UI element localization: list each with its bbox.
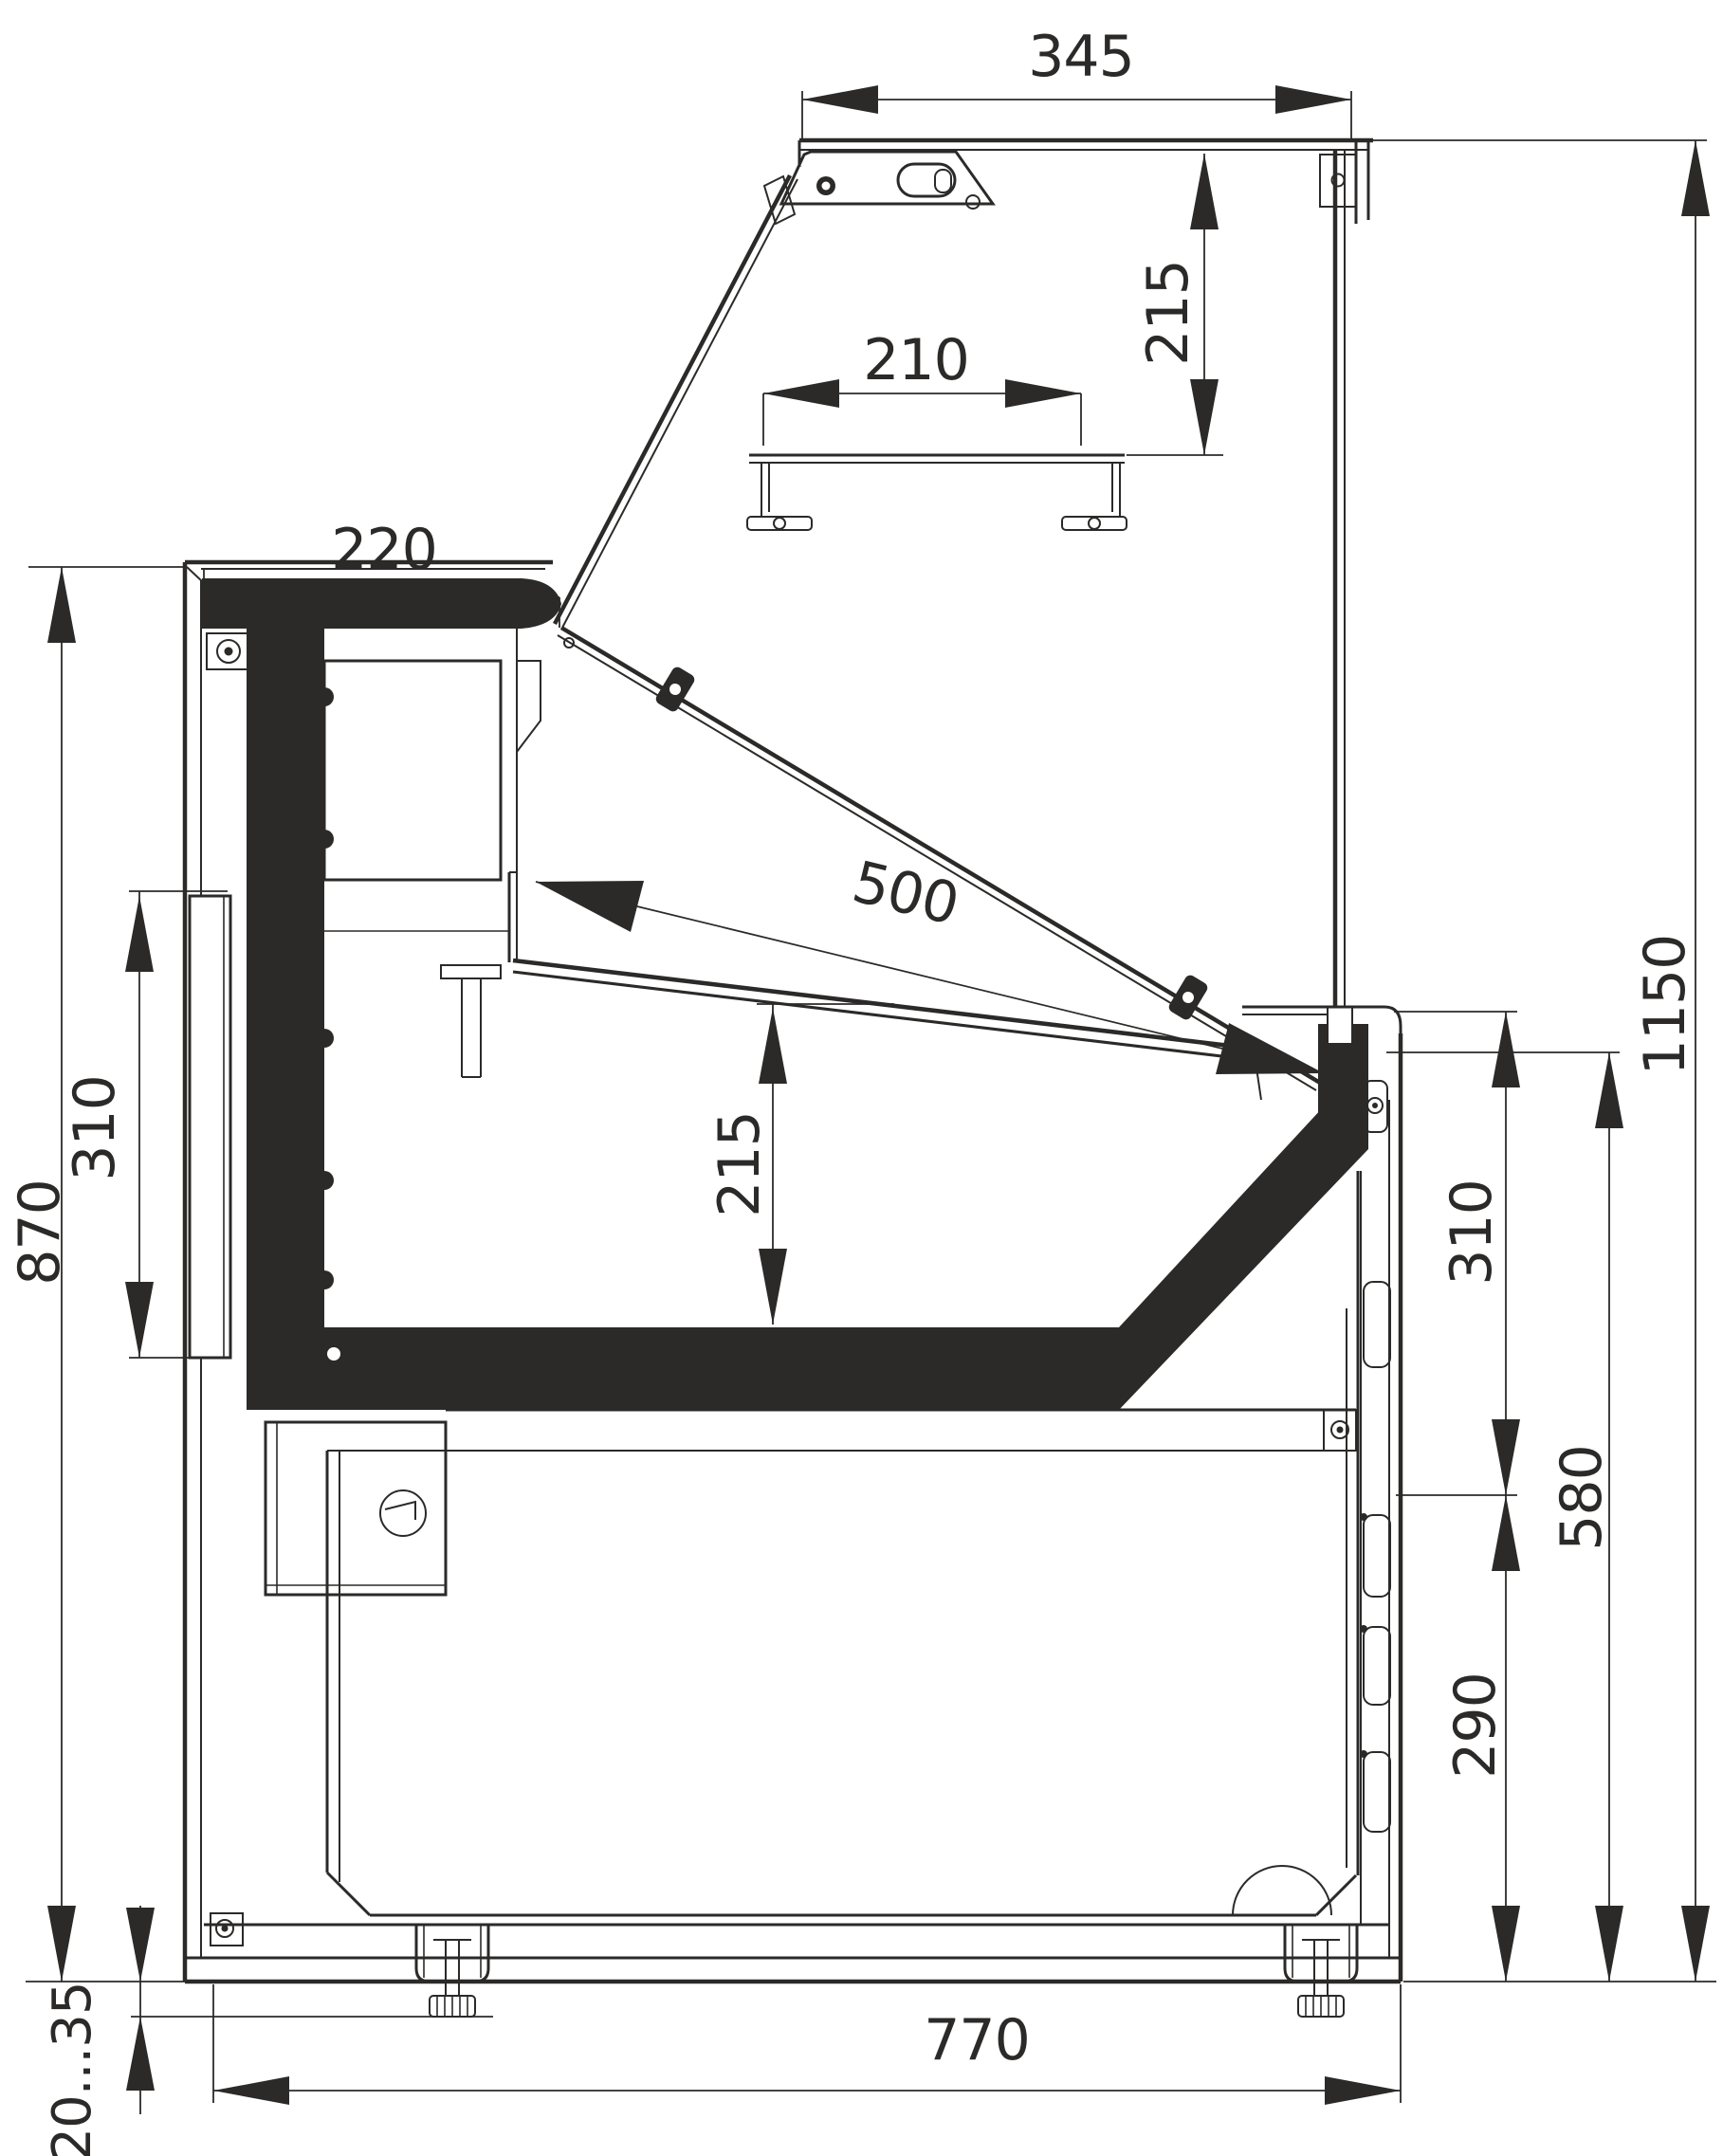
dim-label-580: 580 — [1549, 1445, 1615, 1551]
rear-glass — [555, 175, 797, 628]
dim-foot-adjust: 20...35 — [42, 1906, 493, 2156]
dim-label-290: 290 — [1442, 1672, 1509, 1779]
dim-label-345: 345 — [1028, 24, 1134, 90]
adjustable-foot-right — [1285, 1925, 1357, 2017]
insulation — [247, 628, 1368, 1410]
dim-canopy-height: 215 — [1127, 154, 1223, 455]
dim-vent-zone: 290 — [1442, 1495, 1520, 1982]
dim-well-depth: 215 — [706, 1004, 894, 1325]
dim-label-310-right: 310 — [1439, 1179, 1505, 1286]
dim-label-20-35: 20...35 — [42, 1982, 103, 2156]
dim-front-upper: 310 — [1439, 1012, 1520, 1495]
wall-shelf-bracket — [747, 455, 1127, 530]
compartment-rail — [327, 1410, 1356, 1451]
glass-channel — [1328, 1007, 1352, 1043]
dim-rear-panel-height: 310 — [62, 891, 228, 1358]
dim-label-210: 210 — [863, 327, 969, 393]
dim-canopy-width: 345 — [802, 24, 1351, 138]
dim-base-depth: 770 — [213, 1984, 1401, 2105]
dim-label-215-top: 215 — [1135, 260, 1201, 366]
condensate-tray — [1233, 1866, 1331, 1915]
display-case-section-drawing: 345 215 220 210 500 215 — [0, 0, 1723, 2156]
rear-wall — [185, 562, 230, 1982]
dim-shelf-width: 210 — [763, 327, 1081, 446]
dim-label-870: 870 — [7, 1179, 73, 1286]
compressor-box — [266, 1422, 446, 1595]
adjustable-foot-left — [416, 1925, 488, 2017]
base-frame — [185, 1033, 1401, 1982]
inclined-inner-glass — [558, 628, 1320, 1090]
dim-label-500: 500 — [846, 849, 964, 938]
dim-total-height: 1150 — [1632, 140, 1710, 1982]
front-glass-vertical — [1335, 150, 1345, 1018]
dim-label-310-left: 310 — [62, 1075, 128, 1181]
drain-pipe — [441, 965, 501, 1077]
dim-label-1150: 1150 — [1632, 935, 1698, 1076]
dim-label-215-mid: 215 — [706, 1111, 773, 1217]
column-bracket — [207, 633, 250, 669]
louvre-vents — [1360, 1171, 1390, 1925]
dim-front-lower: 580 — [1549, 1052, 1623, 1982]
dim-deck-length: 500 — [536, 849, 1324, 1074]
dim-label-220: 220 — [331, 517, 437, 583]
dim-worktop-height: 870 — [7, 567, 204, 1982]
dim-label-770: 770 — [924, 2007, 1030, 2074]
drawing-page: 345 215 220 210 500 215 — [0, 0, 1723, 2156]
